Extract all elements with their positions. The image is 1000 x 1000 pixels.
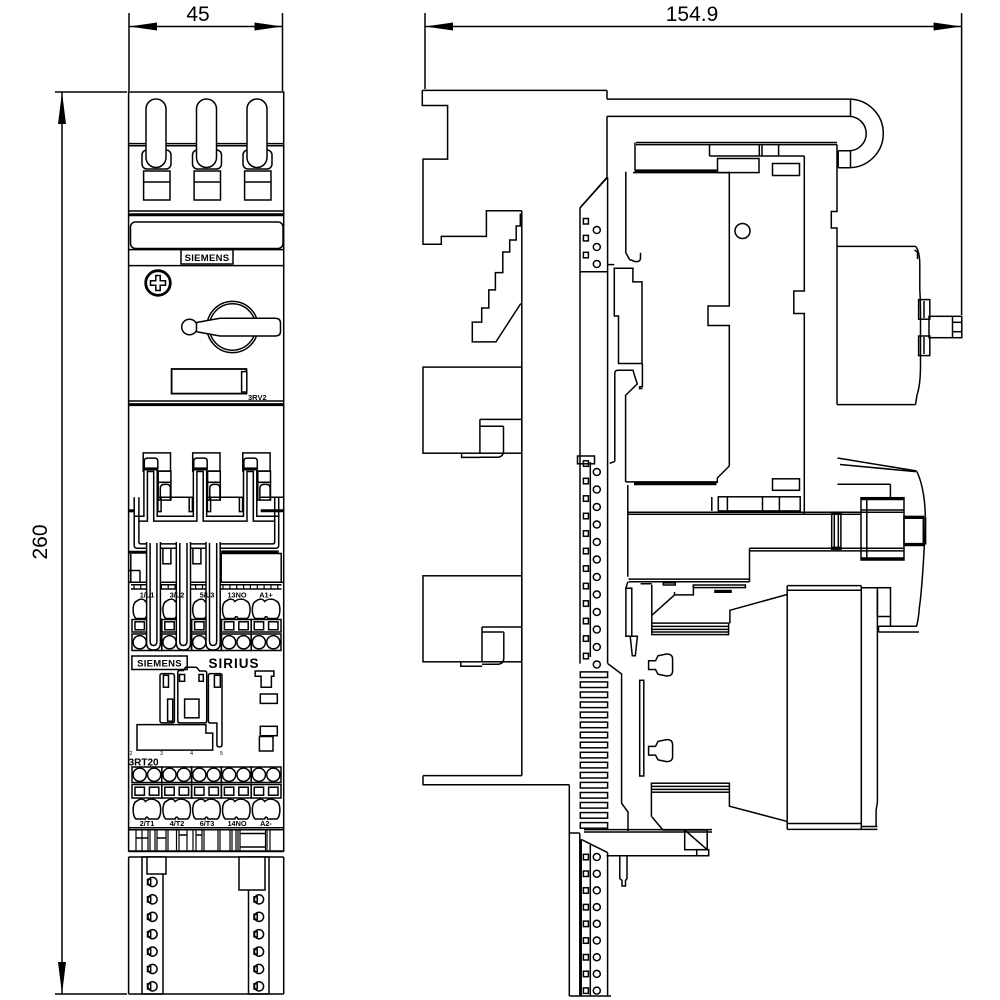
svg-text:SIRIUS: SIRIUS	[208, 656, 259, 671]
svg-text:45: 45	[186, 3, 209, 26]
svg-text:13NO: 13NO	[227, 591, 246, 600]
svg-text:4: 4	[190, 751, 193, 757]
svg-text:5: 5	[220, 751, 223, 757]
svg-text:2/T1: 2/T1	[140, 819, 155, 828]
svg-text:SIEMENS: SIEMENS	[137, 659, 182, 670]
svg-text:5/L3: 5/L3	[200, 591, 215, 600]
svg-text:2: 2	[130, 751, 133, 757]
svg-text:260: 260	[29, 524, 52, 559]
svg-text:154.9: 154.9	[666, 3, 719, 26]
svg-text:3/L2: 3/L2	[170, 591, 185, 600]
svg-text:14NO: 14NO	[227, 819, 246, 828]
svg-text:SIEMENS: SIEMENS	[185, 253, 230, 264]
svg-text:3RV2: 3RV2	[248, 393, 267, 402]
svg-text:4/T2: 4/T2	[170, 819, 185, 828]
svg-text:A2-: A2-	[260, 819, 272, 828]
svg-text:3: 3	[160, 751, 163, 757]
svg-text:6/T3: 6/T3	[200, 819, 215, 828]
svg-text:3RT20: 3RT20	[129, 758, 159, 769]
svg-text:1/L1: 1/L1	[140, 591, 155, 600]
svg-text:A1+: A1+	[259, 591, 273, 600]
